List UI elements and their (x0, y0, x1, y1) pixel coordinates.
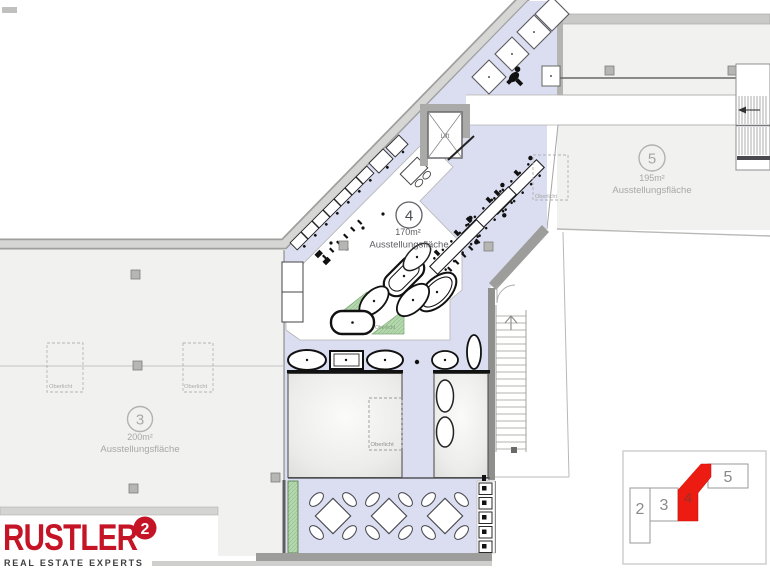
minimap-unit-label: 3 (660, 497, 669, 514)
green-wall-strip (288, 481, 298, 553)
column-marker (484, 242, 493, 251)
bottom-wall-light (152, 561, 492, 566)
column-marker (605, 66, 614, 75)
table-set (363, 490, 415, 542)
column-marker (339, 241, 348, 250)
staircase-upper-right (736, 64, 770, 170)
area-4-type: Ausstellungsfläche (369, 240, 448, 251)
exhibition-room-a: Oberlicht (287, 370, 403, 478)
lift-label: Lift (441, 133, 450, 140)
skylight-label: Oberlicht (535, 194, 557, 200)
logo-tagline: REAL ESTATE EXPERTS (4, 558, 144, 568)
frame-edge-mark (2, 7, 17, 13)
area-3-number: 3 (136, 412, 144, 429)
logo-brand-text: RUSTLER (3, 518, 138, 559)
column-marker (271, 473, 280, 482)
area-4-size: 170m² (395, 227, 421, 237)
bathtub (331, 311, 374, 334)
bottom-wall-band (256, 553, 492, 561)
minimap: 2 3 4 5 (623, 451, 766, 564)
fixture-boxes-column (477, 475, 495, 553)
skylight-label: Oberlicht (375, 325, 396, 331)
skylight-label: Oberlicht (371, 442, 395, 448)
area-5-size: 195m² (639, 173, 665, 183)
area-3-type: Ausstellungsfläche (100, 444, 179, 455)
minimap-unit-label: 5 (724, 469, 733, 486)
area-5-type: Ausstellungsfläche (612, 185, 691, 196)
minimap-unit-label: 2 (636, 501, 645, 518)
area-3-region: Oberlicht Oberlicht 3 200m² Ausstellungs… (0, 248, 283, 556)
table-set (419, 490, 471, 542)
skylight-label: Oberlicht (184, 384, 208, 390)
logo-mark-number: 2 (141, 521, 150, 538)
floor-plan-page: Oberlicht Oberlicht 3 200m² Ausstellungs… (0, 0, 770, 569)
area-3-size: 200m² (127, 432, 153, 442)
storage-rooms (282, 262, 303, 322)
column-marker (129, 484, 138, 493)
floor-plan-canvas: Oberlicht Oberlicht 3 200m² Ausstellungs… (0, 0, 770, 569)
column-marker (133, 361, 142, 370)
skylight-label: Oberlicht (49, 384, 73, 390)
area-5-region: 5 195m² Ausstellungsfläche (547, 12, 770, 236)
minimap-unit-label: 4 (684, 490, 692, 507)
interior-walls (488, 225, 549, 553)
table-set (307, 490, 359, 542)
column-marker (131, 270, 140, 279)
rustler-logo: RUSTLER 2 REAL ESTATE EXPERTS (3, 517, 157, 569)
area-5-number: 5 (648, 151, 656, 168)
area-4-number: 4 (405, 208, 413, 225)
exhibition-room-b (433, 370, 490, 478)
